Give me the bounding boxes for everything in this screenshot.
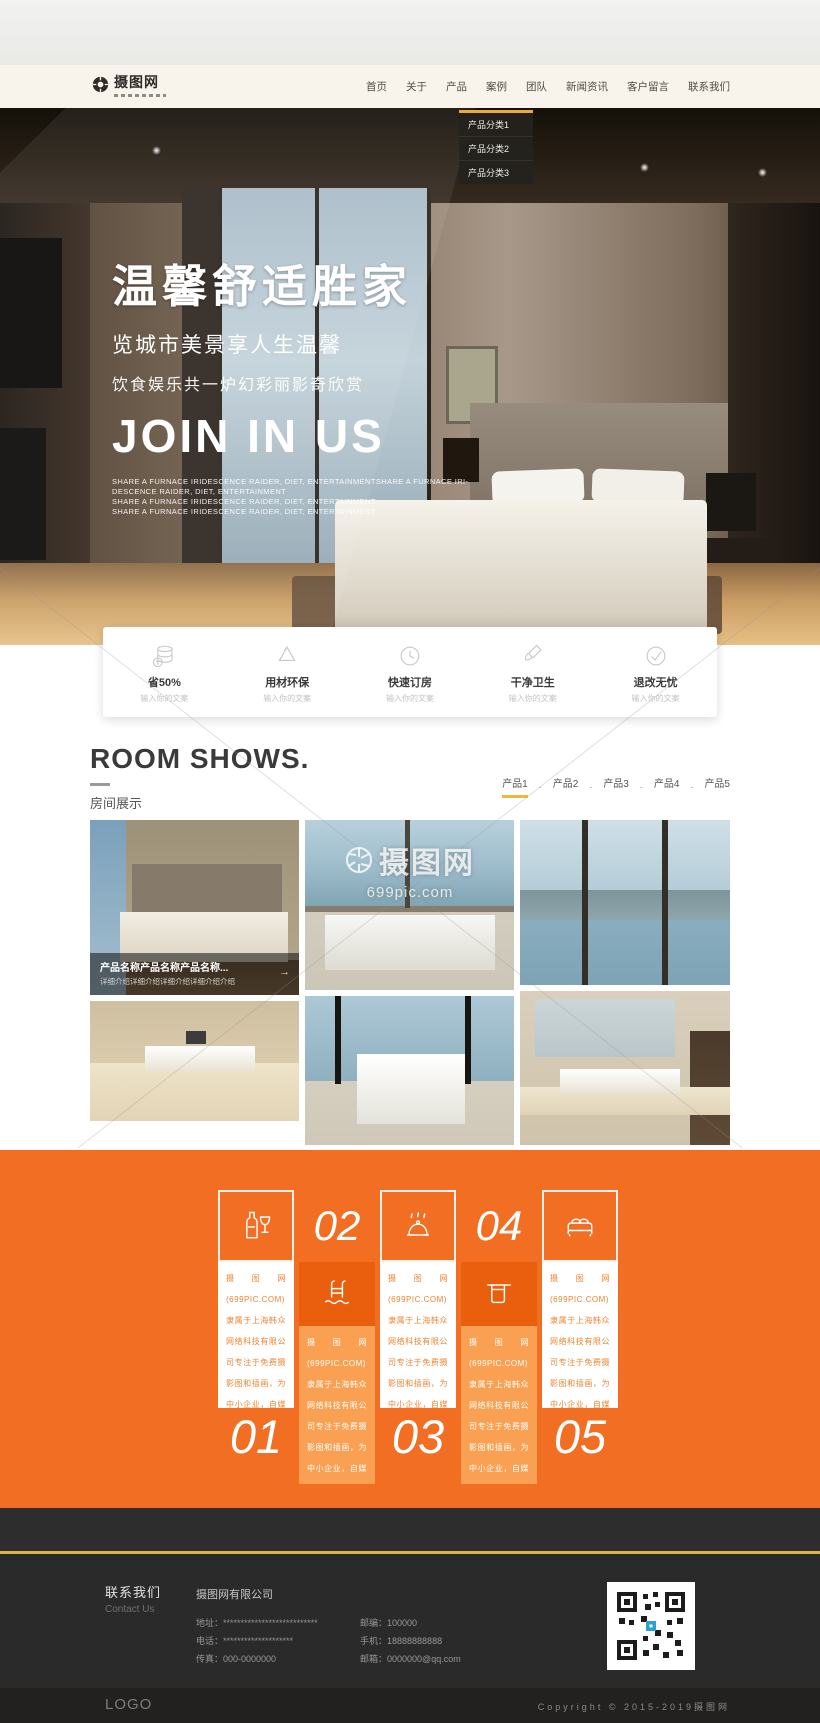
footer-contact-title: 联系我们 bbox=[105, 1582, 161, 1601]
feature-item-eco: 用材环保 输入你的文案 bbox=[226, 627, 349, 717]
phone-value: ******************** bbox=[223, 1636, 293, 1646]
footer-fax-row: 传真：000-0000000 bbox=[196, 1652, 276, 1665]
service-icon-box bbox=[380, 1190, 456, 1262]
caption-title: 产品名称产品名称产品名称... bbox=[100, 959, 289, 974]
product-tabs: 产品1 - 产品2 - 产品3 - 产品4 - 产品5 bbox=[502, 775, 730, 798]
wine-icon bbox=[238, 1208, 274, 1244]
address-value: *************************** bbox=[223, 1618, 318, 1628]
tab-separator: - bbox=[690, 782, 693, 792]
main-nav: 首页 关于 产品 案例 团队 新闻资讯 客户留言 联系我们 bbox=[366, 65, 730, 108]
nav-item-cases[interactable]: 案例 bbox=[486, 79, 507, 94]
service-text-card: 摄图网(699PIC.COM)隶属于上海韩众网络科技有限公司专注于免费摄影图和插… bbox=[380, 1262, 456, 1408]
feature-subtitle: 输入你的文案 bbox=[632, 693, 680, 704]
footer-address-row: 地址：*************************** bbox=[196, 1616, 318, 1629]
dropdown-item-category3[interactable]: 产品分类3 bbox=[459, 161, 533, 184]
feature-subtitle: 输入你的文案 bbox=[386, 693, 434, 704]
mobile-label: 手机： bbox=[360, 1636, 387, 1646]
bottom-bar: LOGO Copyright © 2015-2019摄图网 bbox=[0, 1688, 820, 1723]
clock-icon bbox=[395, 641, 425, 671]
logo-text-block: 摄图网 bbox=[114, 72, 166, 97]
pool-ladder-icon bbox=[319, 1276, 355, 1312]
brush-icon bbox=[518, 641, 548, 671]
room-photo-bedroom[interactable]: 产品名称产品名称产品名称... 详细介绍详细介绍详细介绍详细介绍介绍 → bbox=[90, 820, 299, 995]
tab-separator: - bbox=[539, 782, 542, 792]
feature-item-fast-booking: 快速订房 输入你的文案 bbox=[349, 627, 472, 717]
coins-icon bbox=[149, 641, 179, 671]
tab-separator: - bbox=[640, 782, 643, 792]
feature-title: 快速订房 bbox=[388, 674, 432, 690]
dropdown-item-category2[interactable]: 产品分类2 bbox=[459, 137, 533, 161]
service-blurb: 摄图网(699PIC.COM)隶属于上海韩众网络科技有限公司专注于免费摄影图和插… bbox=[307, 1332, 367, 1484]
step-number-03: 03 bbox=[380, 1408, 456, 1464]
logo-text: 摄图网 bbox=[114, 74, 159, 90]
feature-title: 干净卫生 bbox=[511, 674, 555, 690]
section-title-cn: 房间展示 bbox=[90, 793, 309, 812]
qr-code[interactable] bbox=[607, 1582, 695, 1670]
footer: 联系我们 Contact Us 摄图网有限公司 地址：*************… bbox=[0, 1554, 820, 1688]
footer-contact-subtitle: Contact Us bbox=[105, 1604, 154, 1615]
email-label: 邮箱： bbox=[360, 1654, 387, 1664]
hero-desc-line: SHARE A FURNACE IRIDESCENCE RAIDER, DIET… bbox=[112, 477, 672, 487]
service-blurb: 摄图网(699PIC.COM)隶属于上海韩众网络科技有限公司专注于免费摄影图和插… bbox=[550, 1268, 610, 1408]
tab-product-4[interactable]: 产品4 bbox=[654, 775, 680, 798]
footer-company-name: 摄图网有限公司 bbox=[196, 1586, 273, 1602]
hero-subtitle-2: 饮食娱乐共一炉幻彩丽影奇欣赏 bbox=[112, 371, 672, 395]
hero-copy: 温馨舒适胜家 览城市美景享人生温馨 饮食娱乐共一炉幻彩丽影奇欣赏 JOIN IN… bbox=[112, 108, 672, 645]
room-photo-freestanding-tub[interactable] bbox=[305, 996, 514, 1145]
footer-email-row: 邮箱：0000000@qq.com bbox=[360, 1652, 461, 1665]
service-blurb: 摄图网(699PIC.COM)隶属于上海韩众网络科技有限公司专注于免费摄影图和插… bbox=[469, 1332, 529, 1484]
tab-separator: - bbox=[589, 782, 592, 792]
room-photo-sea-window[interactable] bbox=[520, 820, 730, 985]
postcode-label: 邮编： bbox=[360, 1618, 387, 1628]
section-title-en: ROOM SHOWS. bbox=[90, 743, 309, 775]
service-icon-box bbox=[542, 1190, 618, 1262]
copyright-text: Copyright © 2015-2019摄图网 bbox=[538, 1700, 730, 1713]
room-shows-heading: ROOM SHOWS. 房间展示 bbox=[90, 743, 309, 812]
hero-description: SHARE A FURNACE IRIDESCENCE RAIDER, DIET… bbox=[112, 477, 672, 517]
feature-item-discount: 省50% 输入你的文案 bbox=[103, 627, 226, 717]
service-text-card: 摄图网(699PIC.COM)隶属于上海韩众网络科技有限公司专注于免费摄影图和插… bbox=[542, 1262, 618, 1408]
page: 摄图网 首页 关于 产品 案例 团队 新闻资讯 客户留言 联系我们 bbox=[0, 0, 820, 1723]
service-text-card: 摄图网(699PIC.COM)隶属于上海韩众网络科技有限公司专注于免费摄影图和插… bbox=[461, 1326, 537, 1484]
footer-mobile-row: 手机：18888888888 bbox=[360, 1634, 442, 1647]
step-number-05: 05 bbox=[542, 1408, 618, 1464]
feature-item-worry-free: 退改无忧 输入你的文案 bbox=[594, 627, 717, 717]
feature-subtitle: 输入你的文案 bbox=[509, 693, 557, 704]
site-logo[interactable]: 摄图网 bbox=[92, 72, 166, 97]
hero-subtitle: 览城市美景享人生温馨 bbox=[112, 329, 672, 359]
food-cloche-icon bbox=[400, 1208, 436, 1244]
step-number-02: 02 bbox=[299, 1190, 375, 1262]
top-strip bbox=[0, 0, 820, 65]
hero-banner: 温馨舒适胜家 览城市美景享人生温馨 饮食娱乐共一炉幻彩丽影奇欣赏 JOIN IN… bbox=[0, 108, 820, 645]
address-label: 地址： bbox=[196, 1618, 223, 1628]
dropdown-item-category1[interactable]: 产品分类1 bbox=[459, 113, 533, 137]
feature-title: 省50% bbox=[148, 674, 181, 690]
feature-subtitle: 输入你的文案 bbox=[263, 693, 311, 704]
service-icon-box bbox=[299, 1262, 375, 1326]
logo-icon bbox=[92, 76, 109, 93]
hero-lamp-right bbox=[706, 473, 756, 531]
service-text-card: 摄图网(699PIC.COM)隶属于上海韩众网络科技有限公司专注于免费摄影图和插… bbox=[299, 1326, 375, 1484]
feature-subtitle: 输入你的文案 bbox=[140, 693, 188, 704]
hero-desc-line: DESCENCE RAIDER, DIET, ENTERTAINMENT bbox=[112, 487, 672, 497]
room-photo-bathtub-view[interactable] bbox=[305, 820, 514, 990]
postcode-value: 100000 bbox=[387, 1618, 417, 1628]
step-number-04: 04 bbox=[461, 1190, 537, 1262]
nav-item-news[interactable]: 新闻资讯 bbox=[566, 79, 608, 94]
caption-desc: 详细介绍详细介绍详细介绍详细介绍介绍 bbox=[100, 976, 289, 987]
footer-postcode-row: 邮编：100000 bbox=[360, 1616, 417, 1629]
step-number-01: 01 bbox=[218, 1408, 294, 1464]
hero-title: 温馨舒适胜家 bbox=[112, 250, 672, 315]
fax-label: 传真： bbox=[196, 1654, 223, 1664]
mobile-value: 18888888888 bbox=[387, 1636, 442, 1646]
service-text-card: 摄图网(699PIC.COM)隶属于上海韩众网络科技有限公司专注于免费摄影图和插… bbox=[218, 1262, 294, 1408]
nav-item-products[interactable]: 产品 bbox=[446, 79, 467, 94]
hero-desc-line: SHARE A FURNACE IRIDESCENCE RAIDER, DIET… bbox=[112, 497, 672, 507]
nav-item-about[interactable]: 关于 bbox=[406, 79, 427, 94]
services-section: 摄图网(699PIC.COM)隶属于上海韩众网络科技有限公司专注于免费摄影图和插… bbox=[0, 1150, 820, 1508]
footer-top-band bbox=[0, 1508, 820, 1551]
title-dash bbox=[90, 783, 110, 786]
feature-title: 用材环保 bbox=[265, 674, 309, 690]
service-blurb: 摄图网(699PIC.COM)隶属于上海韩众网络科技有限公司专注于免费摄影图和插… bbox=[388, 1268, 448, 1408]
service-icon-box bbox=[218, 1190, 294, 1262]
header: 摄图网 首页 关于 产品 案例 团队 新闻资讯 客户留言 联系我们 bbox=[0, 65, 820, 108]
check-circle-icon bbox=[641, 641, 671, 671]
logo-subtext-line bbox=[114, 94, 166, 97]
nav-item-feedback[interactable]: 客户留言 bbox=[627, 79, 669, 94]
feature-title: 退改无忧 bbox=[634, 674, 678, 690]
room-photo-vanity[interactable] bbox=[520, 991, 730, 1145]
footer-phone-row: 电话：******************** bbox=[196, 1634, 293, 1647]
bed-icon bbox=[562, 1208, 598, 1244]
service-icon-box bbox=[461, 1262, 537, 1326]
phone-label: 电话： bbox=[196, 1636, 223, 1646]
nav-item-contact[interactable]: 联系我们 bbox=[688, 79, 730, 94]
footer-logo: LOGO bbox=[105, 1696, 152, 1713]
room-photo-sink[interactable] bbox=[90, 1001, 299, 1121]
tab-product-3[interactable]: 产品3 bbox=[603, 775, 629, 798]
feature-card: 省50% 输入你的文案 用材环保 输入你的文案 快速订房 输入你的文案 干净卫生 bbox=[103, 627, 717, 717]
tab-product-2[interactable]: 产品2 bbox=[553, 775, 579, 798]
product-dropdown: 产品分类1 产品分类2 产品分类3 bbox=[459, 110, 533, 184]
fax-value: 000-0000000 bbox=[223, 1654, 276, 1664]
qr-code-pattern bbox=[615, 1590, 687, 1662]
hero-slogan: JOIN IN US bbox=[112, 409, 672, 463]
service-blurb: 摄图网(699PIC.COM)隶属于上海韩众网络科技有限公司专注于免费摄影图和插… bbox=[226, 1268, 286, 1408]
hero-spotlight-3 bbox=[758, 168, 767, 177]
tab-product-5[interactable]: 产品5 bbox=[704, 775, 730, 798]
towel-icon bbox=[481, 1276, 517, 1312]
nav-item-home[interactable]: 首页 bbox=[366, 79, 387, 94]
recycle-icon bbox=[272, 641, 302, 671]
photo-caption: 产品名称产品名称产品名称... 详细介绍详细介绍详细介绍详细介绍介绍 → bbox=[90, 953, 299, 995]
arrow-right-icon[interactable]: → bbox=[279, 966, 290, 978]
tab-product-1[interactable]: 产品1 bbox=[502, 775, 528, 798]
hero-desc-line: SHARE A FURNACE IRIDESCENCE RAIDER, DIET… bbox=[112, 507, 672, 517]
email-value: 0000000@qq.com bbox=[387, 1654, 461, 1664]
feature-item-clean: 干净卫生 输入你的文案 bbox=[471, 627, 594, 717]
nav-item-team[interactable]: 团队 bbox=[526, 79, 547, 94]
